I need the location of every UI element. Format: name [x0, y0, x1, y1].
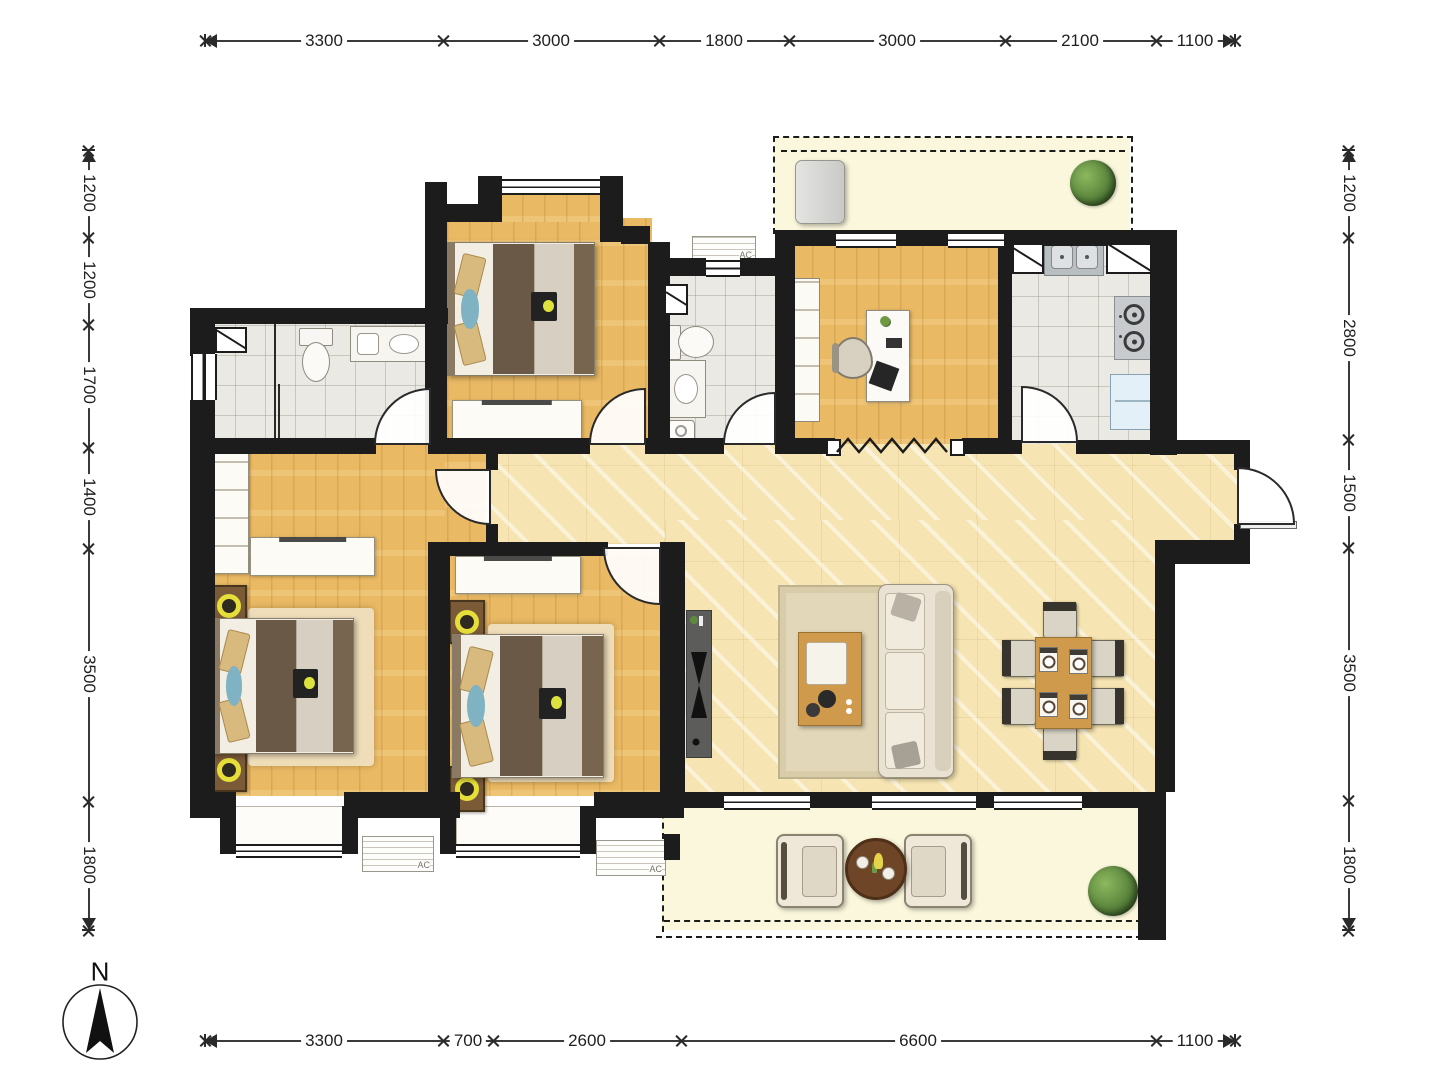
compass-needle-icon	[86, 988, 114, 1053]
dimension-terminator	[204, 1034, 206, 1047]
bathroom1-door	[375, 389, 430, 444]
floor-plan: AC AC AC	[0, 0, 1440, 1080]
dimension-terminator	[82, 149, 95, 151]
dimension-label: 1200	[79, 257, 99, 303]
dimension-label: 1100	[1173, 31, 1218, 51]
dimension-terminator	[1234, 1034, 1236, 1047]
dimension-label: 3300	[301, 31, 347, 51]
dimension-label: 1200	[1339, 170, 1359, 216]
dimension-arrow-icon	[82, 150, 96, 162]
dimension-label: 2600	[564, 1031, 610, 1051]
compass-n-label: N	[91, 957, 110, 988]
dimension-label: 1800	[701, 31, 747, 51]
dimension-label: 3000	[874, 31, 920, 51]
entry-door	[1238, 468, 1294, 524]
master-bedroom-door	[436, 470, 490, 524]
dimension-label: 1800	[79, 842, 99, 888]
dimension-label: 6600	[895, 1031, 941, 1051]
dimension-label: 3500	[1339, 650, 1359, 696]
dimension-terminator	[1342, 149, 1355, 151]
dimension-label: 2100	[1057, 31, 1103, 51]
bedroom3-door	[604, 548, 660, 604]
dimension-label: 700	[450, 1031, 486, 1051]
dimension-label: 3300	[301, 1031, 347, 1051]
dimension-label: 1500	[1339, 470, 1359, 516]
dimension-terminator	[1234, 34, 1236, 47]
dimension-label: 1400	[79, 474, 99, 520]
tv-plant-icon	[690, 616, 698, 624]
dimension-line	[1348, 150, 1350, 930]
dimension-label: 3500	[79, 651, 99, 697]
tv-speaker-icon	[693, 739, 700, 746]
folding-door-zigzag	[837, 439, 947, 452]
dimension-label: 1700	[79, 362, 99, 408]
dimension-terminator	[1342, 929, 1355, 931]
dimension-label: 1100	[1173, 1031, 1218, 1051]
dimension-terminator	[204, 34, 206, 47]
bathroom2-door	[724, 393, 775, 444]
dimension-line	[205, 1040, 1235, 1042]
doors-overlay	[0, 0, 1440, 1080]
dimension-terminator	[82, 929, 95, 931]
dimension-arrow-icon	[205, 1034, 217, 1048]
dimension-label: 1800	[1339, 842, 1359, 888]
dimension-arrow-icon	[205, 34, 217, 48]
kitchen-door	[1022, 387, 1077, 442]
tv-icon	[691, 652, 707, 718]
dimension-label: 1200	[79, 170, 99, 216]
dimension-label: 2800	[1339, 315, 1359, 361]
dimension-arrow-icon	[1342, 150, 1356, 162]
bedroom2-door	[590, 389, 645, 444]
dimension-label: 3000	[528, 31, 574, 51]
